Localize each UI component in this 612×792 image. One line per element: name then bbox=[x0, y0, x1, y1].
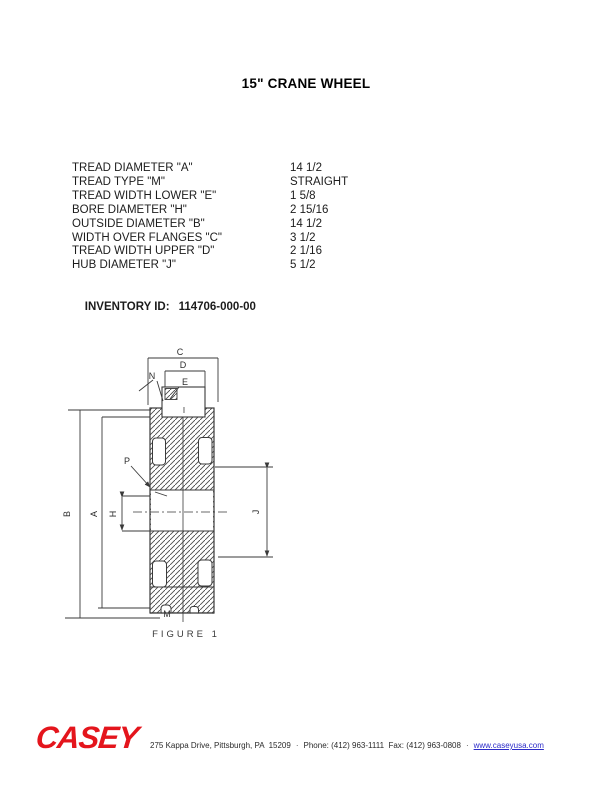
upper-left-cutout bbox=[153, 438, 166, 465]
dim-label-e: E bbox=[182, 377, 188, 387]
inventory-id-value: 114706-000-00 bbox=[179, 301, 256, 313]
wheel-cross-section bbox=[133, 387, 230, 622]
dim-label-j: J bbox=[251, 510, 261, 515]
lower-right-cutout bbox=[198, 560, 212, 586]
footer-address-line: 275 Kappa Drive, Pittsburgh, PA 15209·Ph… bbox=[150, 741, 544, 750]
lower-left-cutout bbox=[153, 561, 167, 587]
dim-label-b: B bbox=[62, 511, 72, 517]
spec-row: WIDTH OVER FLANGES "C"3 1/2 bbox=[72, 232, 402, 246]
spec-table: TREAD DIAMETER "A"14 1/2 TREAD TYPE "M"S… bbox=[72, 162, 402, 273]
spec-row: HUB DIAMETER "J"5 1/2 bbox=[72, 259, 402, 273]
spec-label: BORE DIAMETER "H" bbox=[72, 204, 290, 218]
spec-label: WIDTH OVER FLANGES "C" bbox=[72, 232, 290, 246]
dim-label-p: P bbox=[124, 456, 130, 466]
spec-value: 14 1/2 bbox=[290, 162, 322, 176]
casey-logo: CASEY bbox=[34, 720, 140, 756]
upper-right-cutout bbox=[199, 438, 213, 465]
dim-label-n: N bbox=[149, 371, 156, 381]
dim-label-h: H bbox=[108, 511, 118, 518]
spec-label: TREAD WIDTH LOWER "E" bbox=[72, 190, 290, 204]
spec-row: OUTSIDE DIAMETER "B"14 1/2 bbox=[72, 218, 402, 232]
dim-label-c: C bbox=[177, 347, 184, 357]
inventory-id-label: INVENTORY ID: bbox=[85, 301, 170, 313]
spec-value: 1 5/8 bbox=[290, 190, 316, 204]
document-page: 15" CRANE WHEEL TREAD DIAMETER "A"14 1/2… bbox=[0, 0, 612, 792]
spec-row: BORE DIAMETER "H"2 15/16 bbox=[72, 204, 402, 218]
spec-label: OUTSIDE DIAMETER "B" bbox=[72, 218, 290, 232]
separator-dot: · bbox=[466, 741, 469, 750]
spec-label: TREAD TYPE "M" bbox=[72, 176, 290, 190]
spec-value: 2 1/16 bbox=[290, 245, 322, 259]
spec-label: TREAD WIDTH UPPER "D" bbox=[72, 245, 290, 259]
dim-label-i: I bbox=[183, 406, 185, 415]
spec-value: 3 1/2 bbox=[290, 232, 316, 246]
street-address: 275 Kappa Drive, Pittsburgh, PA 15209 bbox=[150, 741, 291, 750]
spec-label: HUB DIAMETER "J" bbox=[72, 259, 290, 273]
spec-label: TREAD DIAMETER "A" bbox=[72, 162, 290, 176]
spec-row: TREAD TYPE "M"STRAIGHT bbox=[72, 176, 402, 190]
inventory-id: INVENTORY ID:114706-000-00 bbox=[72, 289, 256, 325]
spec-value: 2 15/16 bbox=[290, 204, 328, 218]
spec-row: TREAD DIAMETER "A"14 1/2 bbox=[72, 162, 402, 176]
spec-row: TREAD WIDTH LOWER "E"1 5/8 bbox=[72, 190, 402, 204]
crane-wheel-drawing: C D E N I P H A B J M FIGURE 1 bbox=[40, 345, 290, 645]
figure-1: C D E N I P H A B J M FIGURE 1 bbox=[40, 345, 290, 645]
spec-value: 14 1/2 bbox=[290, 218, 322, 232]
dim-label-m: M bbox=[163, 609, 171, 619]
website-link[interactable]: www.caseyusa.com bbox=[474, 741, 544, 750]
figure-caption: FIGURE 1 bbox=[152, 629, 220, 640]
separator-dot: · bbox=[296, 741, 299, 750]
spec-value: 5 1/2 bbox=[290, 259, 316, 273]
dim-label-a: A bbox=[89, 511, 99, 517]
spec-value: STRAIGHT bbox=[290, 176, 348, 190]
phone-fax: Phone: (412) 963-1111 Fax: (412) 963-080… bbox=[304, 741, 461, 750]
spec-row: TREAD WIDTH UPPER "D"2 1/16 bbox=[72, 245, 402, 259]
dim-label-d: D bbox=[180, 360, 187, 370]
page-title: 15" CRANE WHEEL bbox=[0, 76, 612, 91]
